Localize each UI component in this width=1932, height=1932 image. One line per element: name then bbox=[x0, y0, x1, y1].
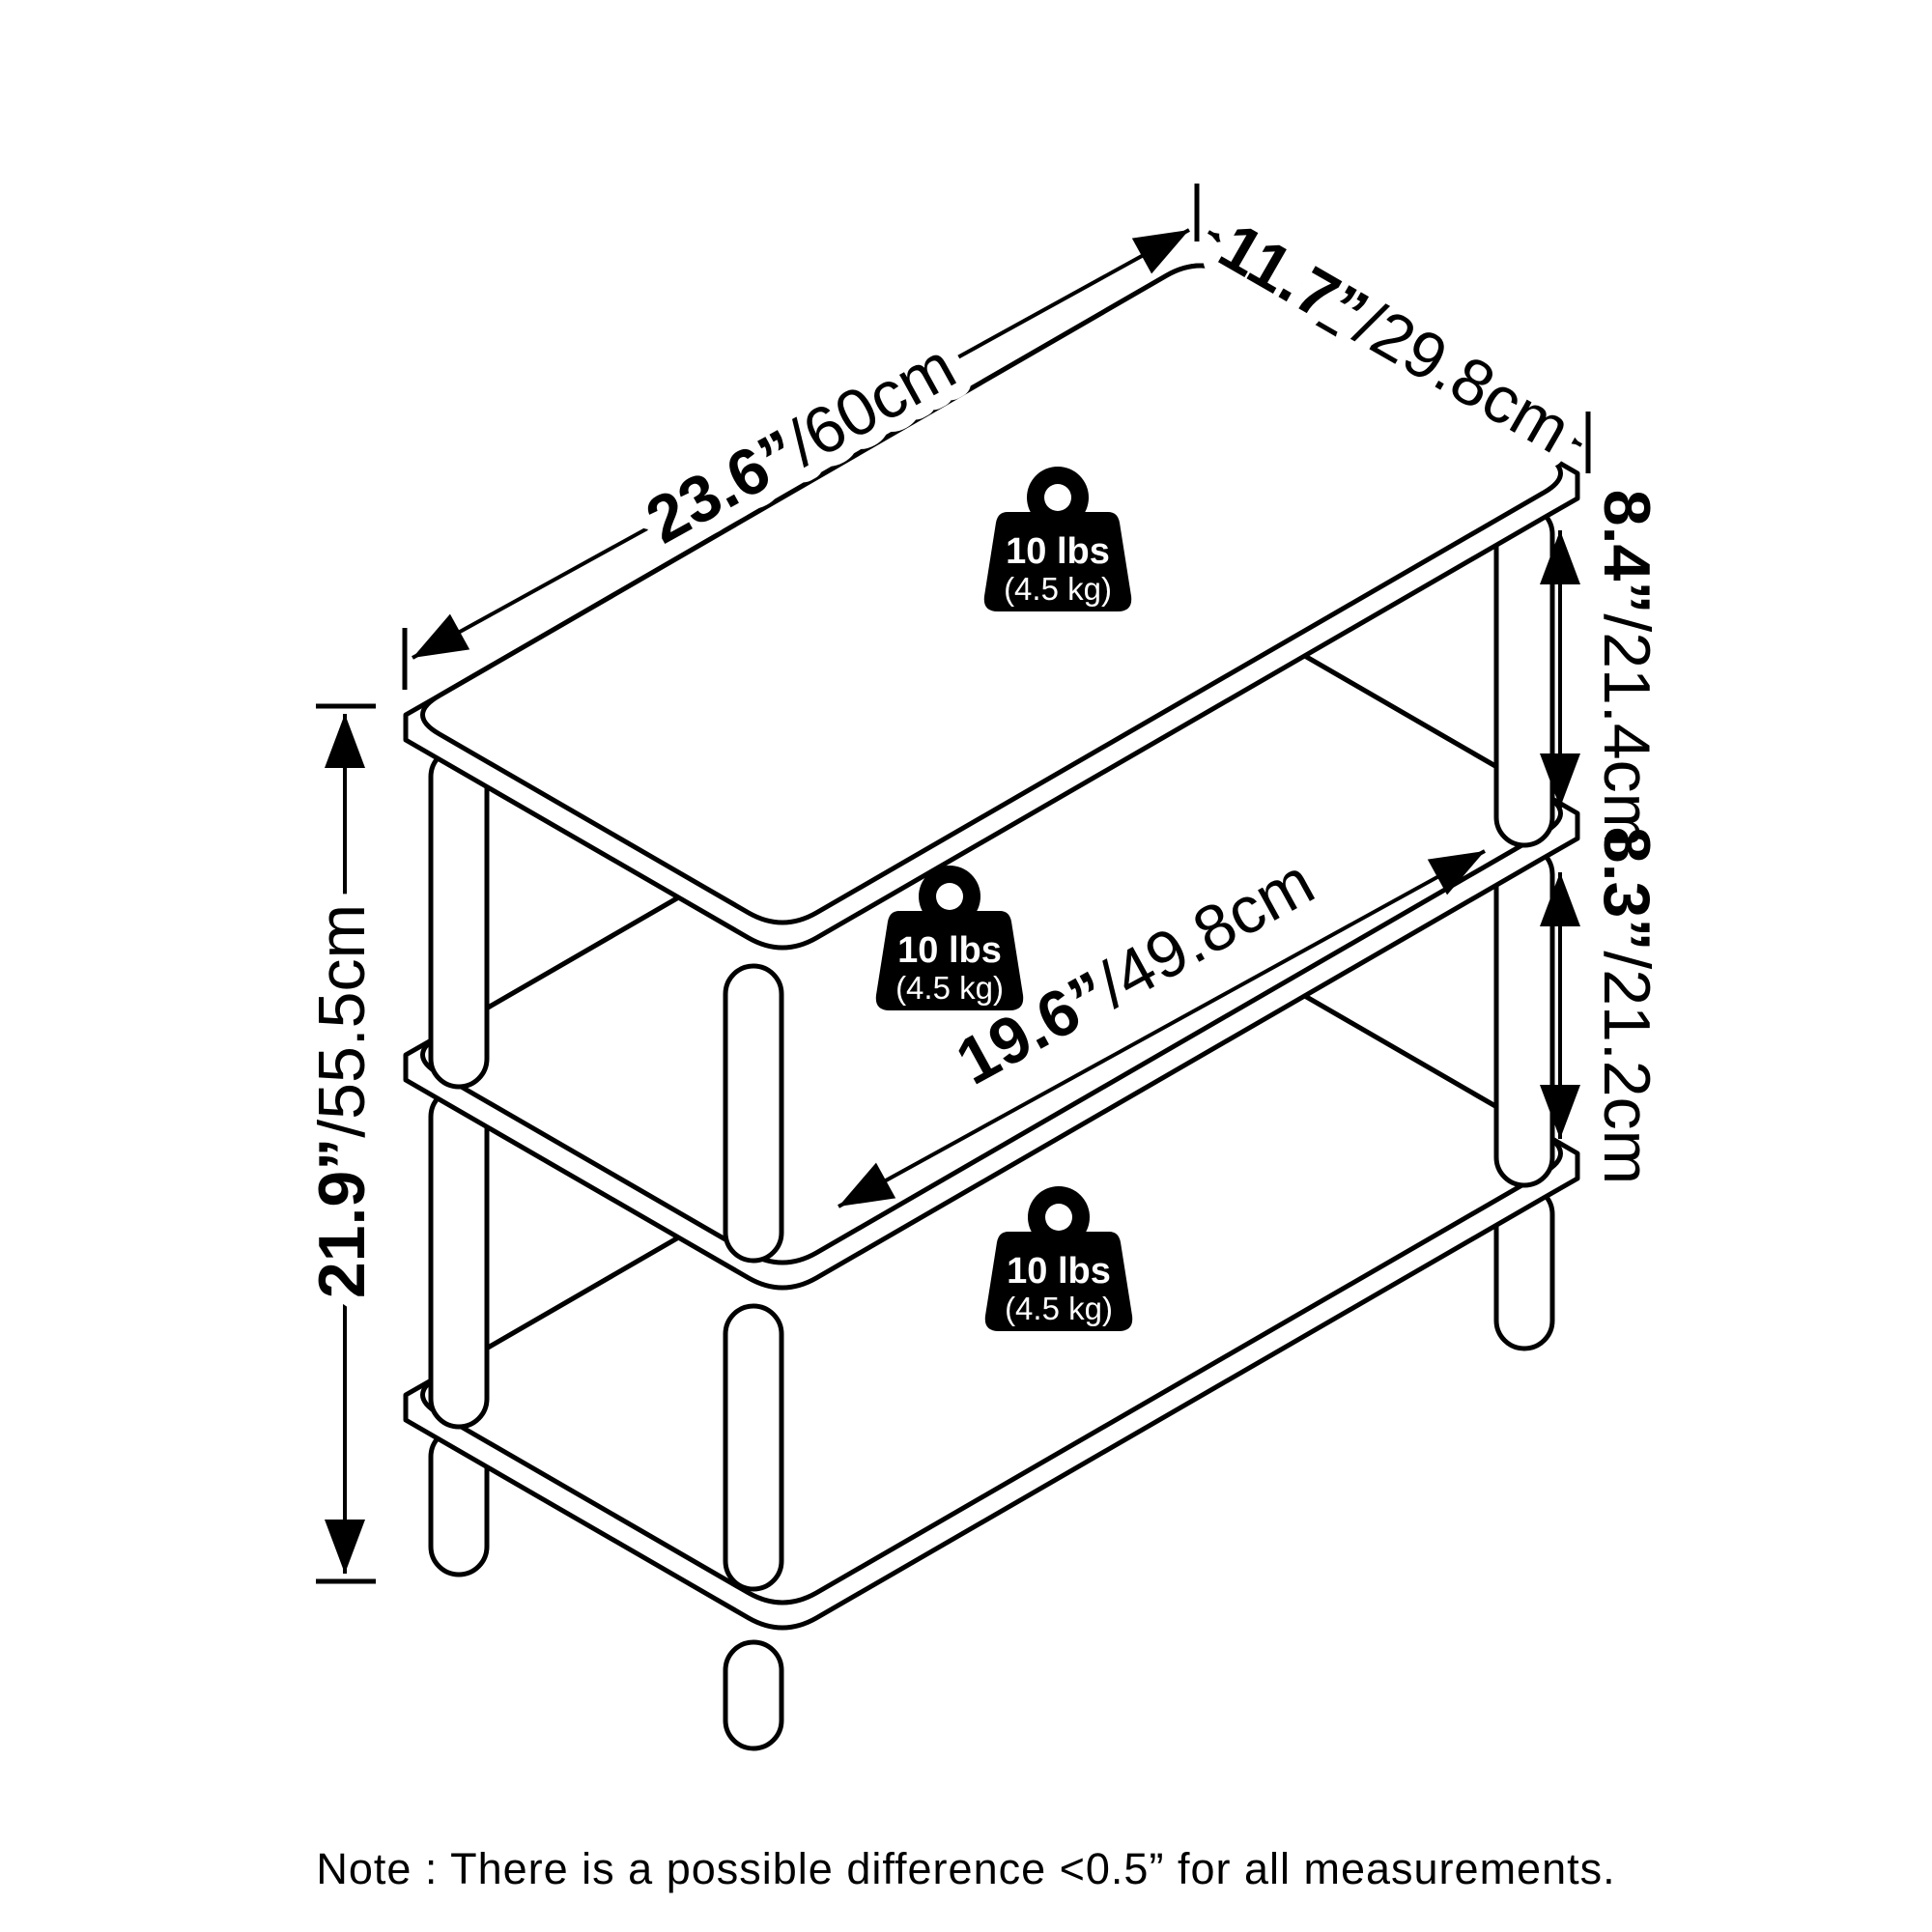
diagram-canvas: 23.6”/60cm 11.7”/29.8cm 21.9”/55.5cm 8.4… bbox=[0, 0, 1932, 1932]
leg-front bbox=[725, 966, 781, 1261]
svg-text:(4.5 kg): (4.5 kg) bbox=[1004, 571, 1112, 607]
dim-label-lower-clearance: 8.3”/21.2cm bbox=[1590, 827, 1663, 1184]
leg-left bbox=[431, 749, 487, 1087]
svg-text:(4.5 kg): (4.5 kg) bbox=[895, 970, 1004, 1006]
dim-label-upper-clearance: 8.4”/21.4cm bbox=[1590, 490, 1663, 847]
dim-lower-clearance: 8.3”/21.2cm bbox=[1560, 827, 1663, 1184]
dim-label-total-height: 21.9”/55.5cm bbox=[305, 904, 379, 1298]
dim-total-height: 21.9”/55.5cm bbox=[305, 706, 379, 1581]
leg-front bbox=[725, 1306, 781, 1589]
leg-right bbox=[1496, 846, 1552, 1185]
svg-text:10 lbs: 10 lbs bbox=[1007, 1251, 1111, 1292]
svg-text:10 lbs: 10 lbs bbox=[1006, 531, 1110, 572]
foot-front bbox=[725, 1642, 781, 1748]
leg-left bbox=[431, 1089, 487, 1427]
note-text: Note : There is a possible difference <0… bbox=[316, 1844, 1615, 1893]
svg-text:10 lbs: 10 lbs bbox=[897, 930, 1002, 971]
svg-text:(4.5 kg): (4.5 kg) bbox=[1005, 1291, 1113, 1326]
dim-upper-clearance: 8.4”/21.4cm bbox=[1560, 490, 1663, 847]
dimension-diagram: 23.6”/60cm 11.7”/29.8cm 21.9”/55.5cm 8.4… bbox=[0, 0, 1932, 1932]
leg-right bbox=[1496, 506, 1552, 845]
